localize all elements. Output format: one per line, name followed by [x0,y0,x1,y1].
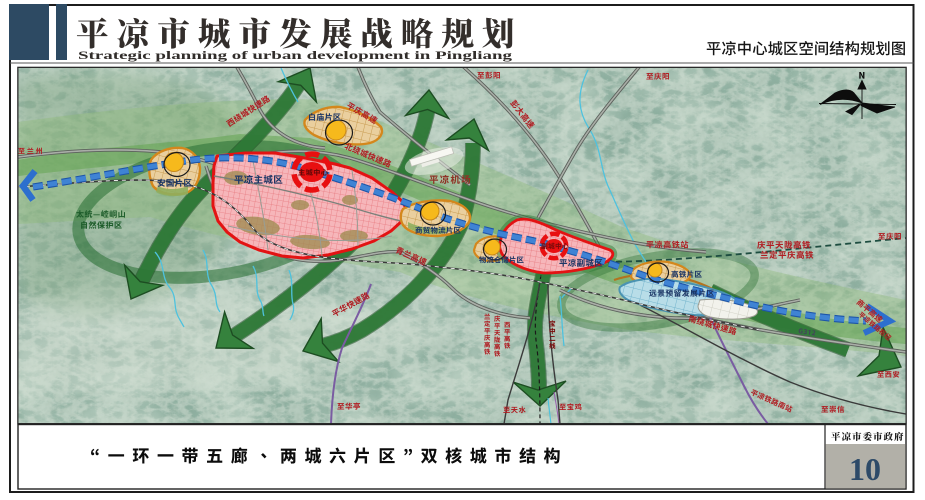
svg-text:Strategic planning of urban de: Strategic planning of urban development … [78,50,512,62]
svg-text:10: 10 [849,451,881,487]
